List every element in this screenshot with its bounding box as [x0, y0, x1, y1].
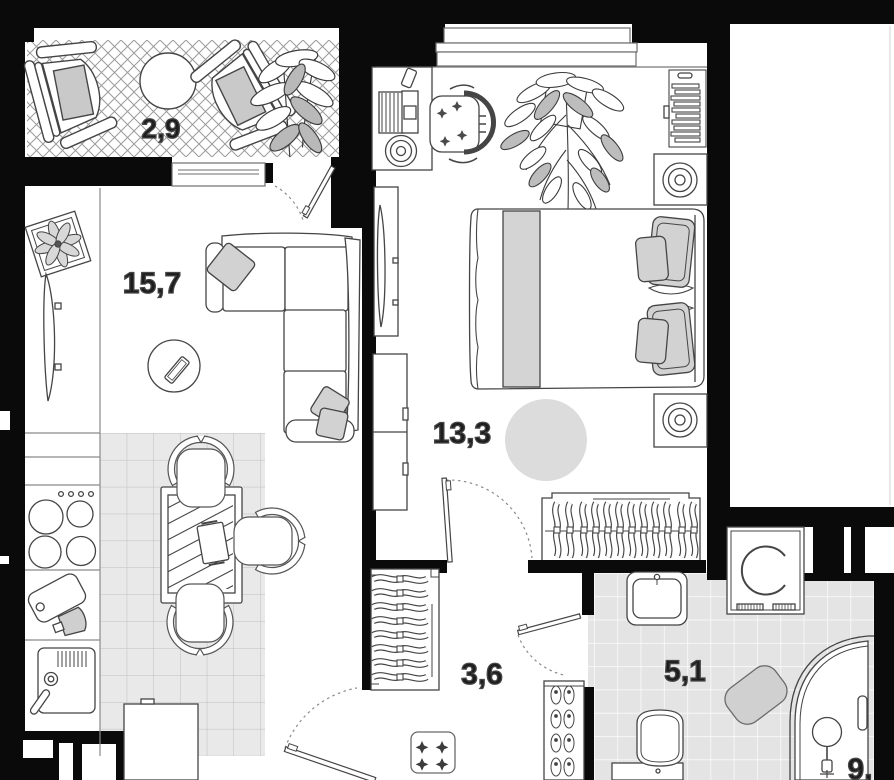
- svg-text:5,1: 5,1: [664, 655, 706, 688]
- svg-text:2,9: 2,9: [142, 113, 181, 144]
- svg-text:13,3: 13,3: [433, 417, 491, 450]
- svg-text:3,6: 3,6: [461, 658, 503, 691]
- svg-text:15,7: 15,7: [123, 267, 181, 300]
- svg-text:9,: 9,: [847, 753, 872, 780]
